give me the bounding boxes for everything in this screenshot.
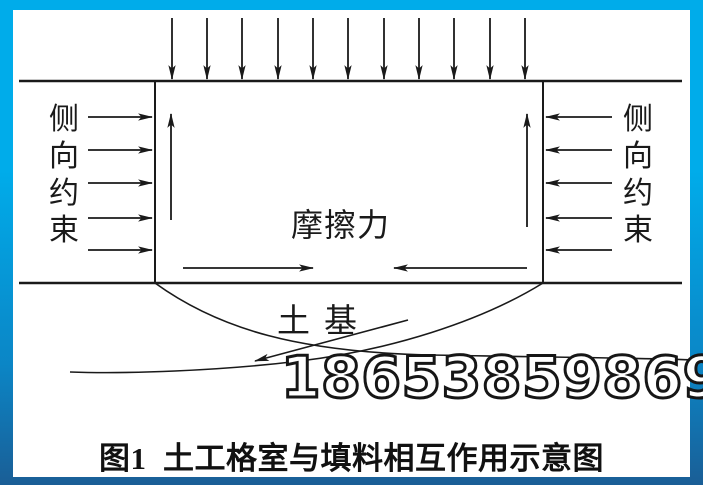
subgrade-label: 土基 (277, 294, 371, 342)
watermark-phone-number: 18653859869 (281, 345, 703, 411)
left-constraint-label: 侧向约束 (47, 101, 81, 249)
right-constraint-label: 侧向约束 (621, 101, 655, 249)
figure-caption: 图1 土工格室与填料相互作用示意图 (0, 433, 703, 478)
surcharge-arrows (172, 18, 525, 79)
friction-label: 摩擦力 (291, 200, 390, 246)
right-constraint-arrows (546, 117, 612, 250)
left-constraint-arrows (88, 117, 152, 250)
